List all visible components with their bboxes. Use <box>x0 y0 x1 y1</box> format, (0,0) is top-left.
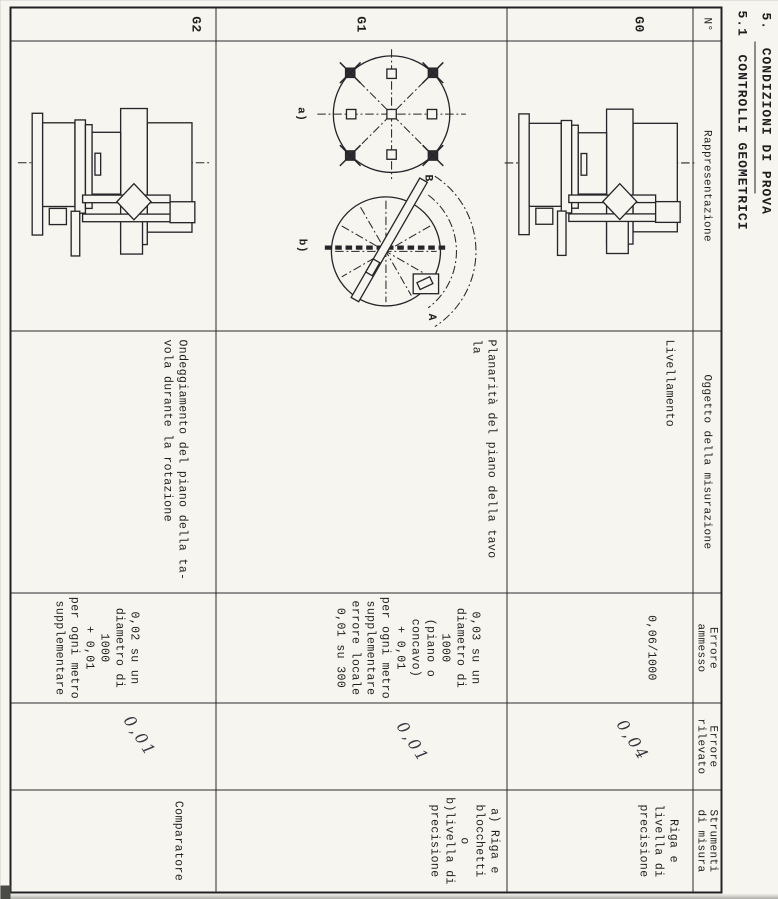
header-errore-ammesso: Erroreammesso <box>693 592 720 702</box>
text-line: vola durante la rotazione <box>159 339 174 592</box>
text-line: errore locale <box>347 593 362 702</box>
text-line: per ogni metro <box>377 593 392 702</box>
text-line: Planarità del piano della tavo <box>483 339 498 592</box>
text-line: 0,03 su un <box>467 593 482 702</box>
gauge-block-pattern-diagram: a) <box>294 48 465 178</box>
cell-object-g2: Ondeggiamento del piano della ta-vola du… <box>11 330 216 592</box>
cell-measured-error-g0: 0,04 <box>507 702 693 789</box>
text-line: diametro di <box>452 593 467 702</box>
section-heading: 5. CONDIZIONI DI PROVA <box>758 12 773 214</box>
text-line: Errore <box>707 626 719 668</box>
cell-drawing-g1: a) <box>216 40 507 330</box>
header-strumenti: Strumentidi misura <box>693 789 720 891</box>
machine-drawing-g0 <box>502 61 697 311</box>
text-line: di misura <box>695 809 707 872</box>
header-rappresentazione: Rappresentazione <box>693 40 720 330</box>
cell-allowed-error-g1: 0,03 su undiametro di1000(piano oconcavo… <box>216 592 507 702</box>
text-line: precisione <box>635 790 650 891</box>
cell-object-g1: Planarità del piano della tavola <box>216 330 507 592</box>
subsection-heading: 5.1 CONTROLLI GEOMETRICI <box>734 10 749 230</box>
geometric-tests-table: N° Rappresentazione Oggetto della misura… <box>9 6 722 893</box>
document-page: 5. CONDIZIONI DI PROVA 5.1 CONTROLLI GEO… <box>0 0 778 899</box>
text-line: Comparatore <box>170 790 185 891</box>
text-line: blocchetti <box>471 790 486 891</box>
machine-side-view-svg <box>502 61 697 311</box>
text-line: Livellamento <box>661 339 676 592</box>
straightedge-sweep-diagram: b) <box>295 173 475 325</box>
text-line: o <box>456 790 471 891</box>
text-line: 1000 <box>96 593 111 702</box>
flatness-diagrams-svg: a) <box>244 37 479 335</box>
point-b-label: B <box>421 173 433 180</box>
handwritten-value-g2: 0,01 <box>121 713 158 759</box>
row-id-g1: G1 <box>216 8 507 40</box>
machine-side-view-svg <box>16 56 211 316</box>
header-num: N° <box>693 8 720 40</box>
heading-underline <box>754 41 755 193</box>
text-line: la <box>468 339 483 592</box>
text-line: Rappresentazione <box>701 129 713 241</box>
row-id-g2: G2 <box>11 8 216 40</box>
text-line: ammesso <box>695 623 707 672</box>
scan-edge-shadow <box>0 893 778 899</box>
cell-object-g0: Livellamento <box>507 330 693 592</box>
cell-allowed-error-g2: 0,02 su undiametro di1000+ 0,01per ogni … <box>11 592 216 702</box>
text-line: N° <box>701 17 713 31</box>
text-line: + 0,01 <box>392 593 407 702</box>
cell-instruments-g0: Riga elivella diprecisione <box>507 789 693 891</box>
cell-measured-error-g1: 0,01 <box>216 702 507 789</box>
text-line: b)livella di <box>441 790 456 891</box>
text-line: diametro di <box>111 593 126 702</box>
flatness-diagrams-g1: a) <box>244 37 479 335</box>
cell-measured-error-g2: 0,01 <box>11 702 216 789</box>
header-errore-rilevato: Errorerilevato <box>693 702 720 789</box>
cell-drawing-g2 <box>11 40 216 330</box>
text-line: Strumenti <box>707 809 719 872</box>
text-line: concavo) <box>407 593 422 702</box>
cell-instruments-g2: Comparatore <box>11 789 216 891</box>
text-line: Oggetto della misurazione <box>701 374 713 549</box>
text-line: supplementare <box>362 593 377 702</box>
handwritten-value-g0: 0,04 <box>614 717 651 763</box>
text-line: 0,06/1000 <box>643 593 658 702</box>
text-line: rilevato <box>695 718 707 774</box>
diagram-b-label: b) <box>295 238 307 252</box>
header-oggetto: Oggetto della misurazione <box>693 330 720 592</box>
text-line: + 0,01 <box>81 593 96 702</box>
machine-drawing-g2 <box>16 56 211 316</box>
cell-allowed-error-g0: 0,06/1000 <box>507 592 693 702</box>
point-a-label: A <box>425 313 437 320</box>
scanned-page-canvas: 5. CONDIZIONI DI PROVA 5.1 CONTROLLI GEO… <box>0 0 778 899</box>
text-line: 0,01 su 300 <box>332 593 347 702</box>
text-line: per ogni metro <box>66 593 81 702</box>
cell-instruments-g1: a) Riga eblocchettiob)livella diprecisio… <box>216 789 507 891</box>
text-line: (piano o <box>422 593 437 702</box>
text-line: Errore <box>707 725 719 767</box>
text-line: 0,02 su un <box>126 593 141 702</box>
row-id-g0: G0 <box>507 8 693 40</box>
diagram-a-label: a) <box>294 106 306 120</box>
text-line: precisione <box>426 790 441 891</box>
text-line: 1000 <box>437 593 452 702</box>
text-line: Ondeggiamento del piano della ta- <box>174 339 189 592</box>
scan-corner-mark <box>0 885 10 899</box>
cell-drawing-g0 <box>507 40 693 330</box>
text-line: livella di <box>650 790 665 891</box>
handwritten-value-g1: 0,01 <box>394 719 431 765</box>
text-line: supplementare <box>51 593 66 702</box>
text-line: Riga e <box>665 790 680 891</box>
text-line: a) Riga e <box>486 790 501 891</box>
